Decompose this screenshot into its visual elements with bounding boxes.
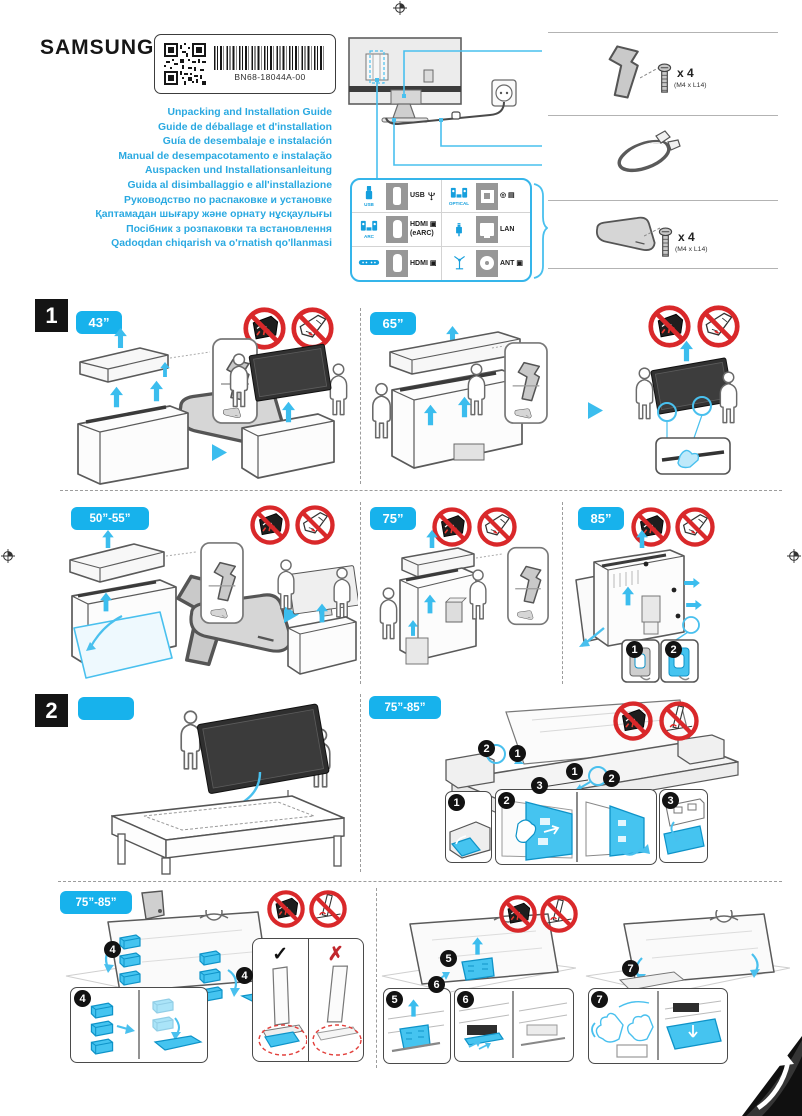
screw-spec: (M4 x L14)	[675, 246, 707, 253]
step-badge: 6	[457, 991, 474, 1008]
title-line: Guide de déballage et d'installation	[60, 121, 332, 136]
antenna-icon	[452, 255, 467, 271]
step-badge: 2	[498, 792, 515, 809]
registration-mark-top-icon	[393, 1, 407, 15]
incorrect-half: ✗	[309, 939, 364, 1061]
port-caption: USB	[364, 202, 374, 207]
detail-inset-7	[588, 988, 728, 1064]
step-badge: 4	[104, 941, 121, 958]
unbox-43-illustration	[66, 328, 358, 486]
step-badge: 4	[236, 967, 253, 984]
optical-port-icon	[476, 183, 498, 210]
title-line: Auspacken und Installationsanleitung	[60, 164, 332, 179]
screw-qty: x 4	[677, 66, 694, 80]
divider	[58, 881, 782, 882]
divider	[360, 308, 361, 484]
title-line: Guía de desembalaje e instalación	[60, 135, 332, 150]
step-badge: 4	[74, 990, 91, 1007]
divider	[562, 502, 563, 684]
usb-device-icon	[362, 185, 376, 201]
no-grab-screen-icon	[498, 894, 538, 934]
optical-speakers-icon	[449, 187, 469, 200]
title-line: Руководство по распаковке и установке	[60, 194, 332, 209]
accessory-divider	[548, 32, 778, 33]
step-badge: 1	[448, 794, 465, 811]
step-badge: 2	[665, 641, 682, 658]
port-label: ANT ▣	[500, 260, 523, 268]
no-tilt-screen-icon	[658, 700, 700, 742]
step-badge: 7	[622, 960, 639, 977]
registration-mark-left-icon	[1, 549, 15, 563]
port-row-usb: USB USB	[352, 180, 441, 213]
manual-page: SAMSUNG BN68-18044A-00 Unpacking and Ins…	[0, 0, 802, 1116]
lan-port-icon	[476, 216, 498, 243]
unbox-65-illustration	[362, 326, 782, 486]
rear-ports-panel: USB USB OPTICAL ◎ ▤ ARC	[350, 178, 532, 282]
port-row-hdmi: HDMI ▣	[352, 247, 441, 280]
step-badge: 7	[591, 991, 608, 1008]
port-label: ◎ ▤	[500, 192, 515, 200]
no-grab-screen-icon	[266, 889, 306, 929]
cable-holder-part	[612, 126, 686, 180]
size-badge-75: 75”	[370, 507, 416, 530]
port-label: HDMI ▣	[410, 260, 436, 268]
lay-on-table-illustration	[92, 700, 360, 878]
divider	[376, 888, 377, 1068]
usb-trident-icon	[427, 191, 436, 201]
size-badge-50-55: 50”-55”	[71, 507, 149, 530]
port-row-ant: ANT ▣	[441, 247, 530, 280]
size-badge-75-85: 75”-85”	[369, 696, 441, 719]
correct-half: ✓	[253, 939, 309, 1061]
barcode-block: BN68-18044A-00	[214, 46, 326, 82]
step-badge: 6	[428, 976, 445, 993]
barcode-icon	[214, 46, 326, 70]
unbox-50-55-illustration	[60, 530, 358, 686]
part-number: BN68-18044A-00	[214, 72, 326, 82]
divider	[360, 694, 361, 872]
step-badge: 3	[662, 792, 679, 809]
step-badge: 3	[531, 777, 548, 794]
arc-speakers-icon	[359, 220, 379, 233]
port-row-lan: LAN	[441, 213, 530, 246]
accessory-divider	[548, 115, 778, 116]
screw-spec: (M4 x L14)	[674, 82, 706, 89]
correct-incorrect-panel: ✓ ✗	[252, 938, 364, 1062]
port-label: LAN	[500, 226, 514, 234]
divider	[60, 490, 782, 491]
step-badge: 5	[440, 950, 457, 967]
multilingual-titles: Unpacking and Installation Guide Guide d…	[60, 106, 332, 252]
tv-rear-diagram	[346, 28, 542, 178]
section-1-badge: 1	[35, 299, 68, 332]
no-grab-screen-icon	[612, 700, 654, 742]
hdmi-earc-port-icon	[386, 216, 408, 243]
hdmi-port-icon	[386, 250, 408, 277]
samsung-logo: SAMSUNG	[40, 36, 154, 60]
title-line: Қаптамадан шығару және орнату нұсқаулығы	[60, 208, 332, 223]
unbox-85-illustration	[574, 528, 780, 688]
detail-inset-2	[495, 789, 657, 865]
ant-port-icon	[476, 250, 498, 277]
usb-port-icon	[386, 183, 408, 210]
port-caption: OPTICAL	[449, 201, 469, 206]
soundbar-icon	[358, 258, 380, 267]
step-badge: 1	[626, 641, 643, 658]
lan-plug-icon	[452, 221, 466, 237]
no-tilt-screen-icon	[308, 889, 348, 929]
accessory-divider	[548, 268, 778, 269]
title-line: Guida al disimballaggio e all'installazi…	[60, 179, 332, 194]
screw-qty: x 4	[678, 230, 695, 244]
port-sublabel: (eARC)	[410, 230, 434, 238]
title-line: Посібник з розпаковки та встановлення	[60, 223, 332, 238]
step-badge: 1	[509, 745, 526, 762]
ports-callout-bracket	[532, 182, 548, 280]
title-line: Qadoqdan chiqarish va o'rnatish qo'llanm…	[60, 237, 332, 252]
port-label: HDMI ▣	[410, 221, 436, 229]
port-caption: ARC	[364, 234, 374, 239]
registration-mark-right-icon	[787, 549, 801, 563]
no-tilt-screen-icon	[539, 894, 579, 934]
screw-icon	[657, 62, 672, 96]
divider	[360, 502, 361, 684]
accessory-divider	[548, 200, 778, 201]
page-curl-icon	[742, 1036, 802, 1116]
step-badge: 1	[566, 763, 583, 780]
section-2-badge: 2	[35, 694, 68, 727]
port-row-hdmi-earc: ARC HDMI ▣ (eARC)	[352, 213, 441, 246]
step-badge: 2	[603, 770, 620, 787]
step-badge: 2	[478, 740, 495, 757]
port-label: USB	[410, 192, 425, 200]
size-badge-85: 85”	[578, 507, 624, 530]
qr-code-icon	[164, 43, 206, 85]
unbox-75-illustration	[362, 528, 562, 686]
product-label: BN68-18044A-00	[154, 34, 336, 94]
port-row-optical: OPTICAL ◎ ▤	[441, 180, 530, 213]
title-line: Manual de desempacotamento e instalação	[60, 150, 332, 165]
screw-icon	[658, 226, 673, 260]
title-line: Unpacking and Installation Guide	[60, 106, 332, 121]
step-badge: 5	[386, 991, 403, 1008]
